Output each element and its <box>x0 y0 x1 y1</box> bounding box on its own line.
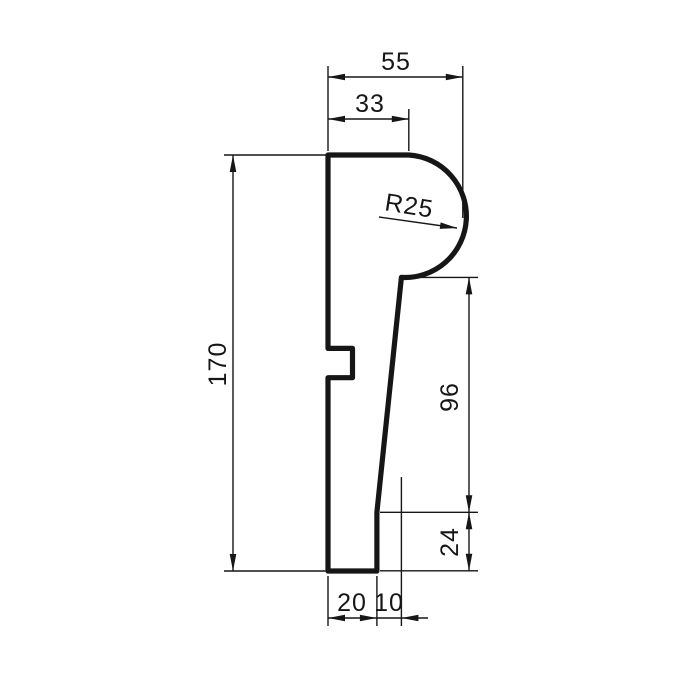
arrowhead-right-icon <box>392 116 409 123</box>
arrowhead-up-icon <box>466 512 473 529</box>
arrowhead-leader-icon <box>440 222 458 231</box>
dimension-label: 20 <box>337 589 367 617</box>
arrowhead-down-icon <box>466 554 473 571</box>
arrowhead-left-outside-icon <box>401 615 418 622</box>
dimension-top-flat-width: 33 <box>328 90 409 151</box>
drawing-area: 55 33 170 R25 96 24 <box>0 0 686 686</box>
arrowhead-up-icon <box>466 277 473 294</box>
dimension-label: 33 <box>355 90 385 118</box>
dimension-total-height: 170 <box>204 155 326 571</box>
arrowhead-down-icon <box>230 554 237 571</box>
arrowhead-left-icon <box>328 74 345 81</box>
dimension-label: 10 <box>374 589 404 617</box>
dimension-front-lower-height: 24 <box>380 512 478 571</box>
dimension-label: 170 <box>204 342 232 387</box>
dimension-label: 24 <box>436 527 464 557</box>
arrowhead-left-icon <box>328 116 345 123</box>
dimension-label: 55 <box>381 48 411 76</box>
dimension-label: 96 <box>436 382 464 412</box>
arrowhead-up-icon <box>230 155 237 172</box>
technical-drawing: 55 33 170 R25 96 24 <box>0 0 686 686</box>
arrowhead-down-icon <box>466 495 473 512</box>
dimension-front-upper-height: 96 <box>380 277 478 512</box>
arrowhead-right-icon <box>446 74 463 81</box>
radius-callout: R25 <box>379 188 457 231</box>
